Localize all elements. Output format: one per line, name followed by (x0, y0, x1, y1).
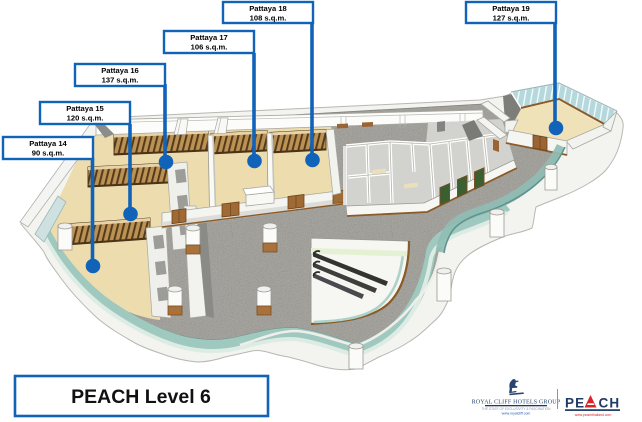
svg-text:108 s.q.m.: 108 s.q.m. (250, 13, 287, 22)
svg-text:Pattaya 17: Pattaya 17 (190, 33, 228, 42)
svg-text:ROYAL CLIFF HOTELS GROUP: ROYAL CLIFF HOTELS GROUP (472, 400, 561, 406)
svg-text:Pattaya 18: Pattaya 18 (249, 4, 287, 13)
svg-text:THE STATE OF EXCLUSIVITY & FAS: THE STATE OF EXCLUSIVITY & FASCINATION (482, 407, 552, 411)
svg-text:CH: CH (599, 396, 621, 411)
svg-text:127 s.q.m.: 127 s.q.m. (493, 13, 530, 22)
svg-text:90 s.q.m.: 90 s.q.m. (32, 148, 65, 157)
svg-text:Pattaya 15: Pattaya 15 (66, 104, 104, 113)
svg-text:www.peachthailand.com: www.peachthailand.com (575, 413, 612, 417)
svg-text:Pattaya 19: Pattaya 19 (492, 4, 530, 13)
svg-text:PEACH Level 6: PEACH Level 6 (71, 386, 211, 408)
svg-text:www.royalcliff.com: www.royalcliff.com (502, 412, 531, 416)
svg-text:120 s.q.m.: 120 s.q.m. (67, 113, 104, 122)
svg-text:Pattaya 14: Pattaya 14 (29, 139, 67, 148)
svg-text:137 s.q.m.: 137 s.q.m. (102, 75, 139, 84)
svg-text:Pattaya 16: Pattaya 16 (101, 66, 139, 75)
svg-text:106 s.q.m.: 106 s.q.m. (191, 42, 228, 51)
svg-text:PE: PE (565, 396, 585, 411)
